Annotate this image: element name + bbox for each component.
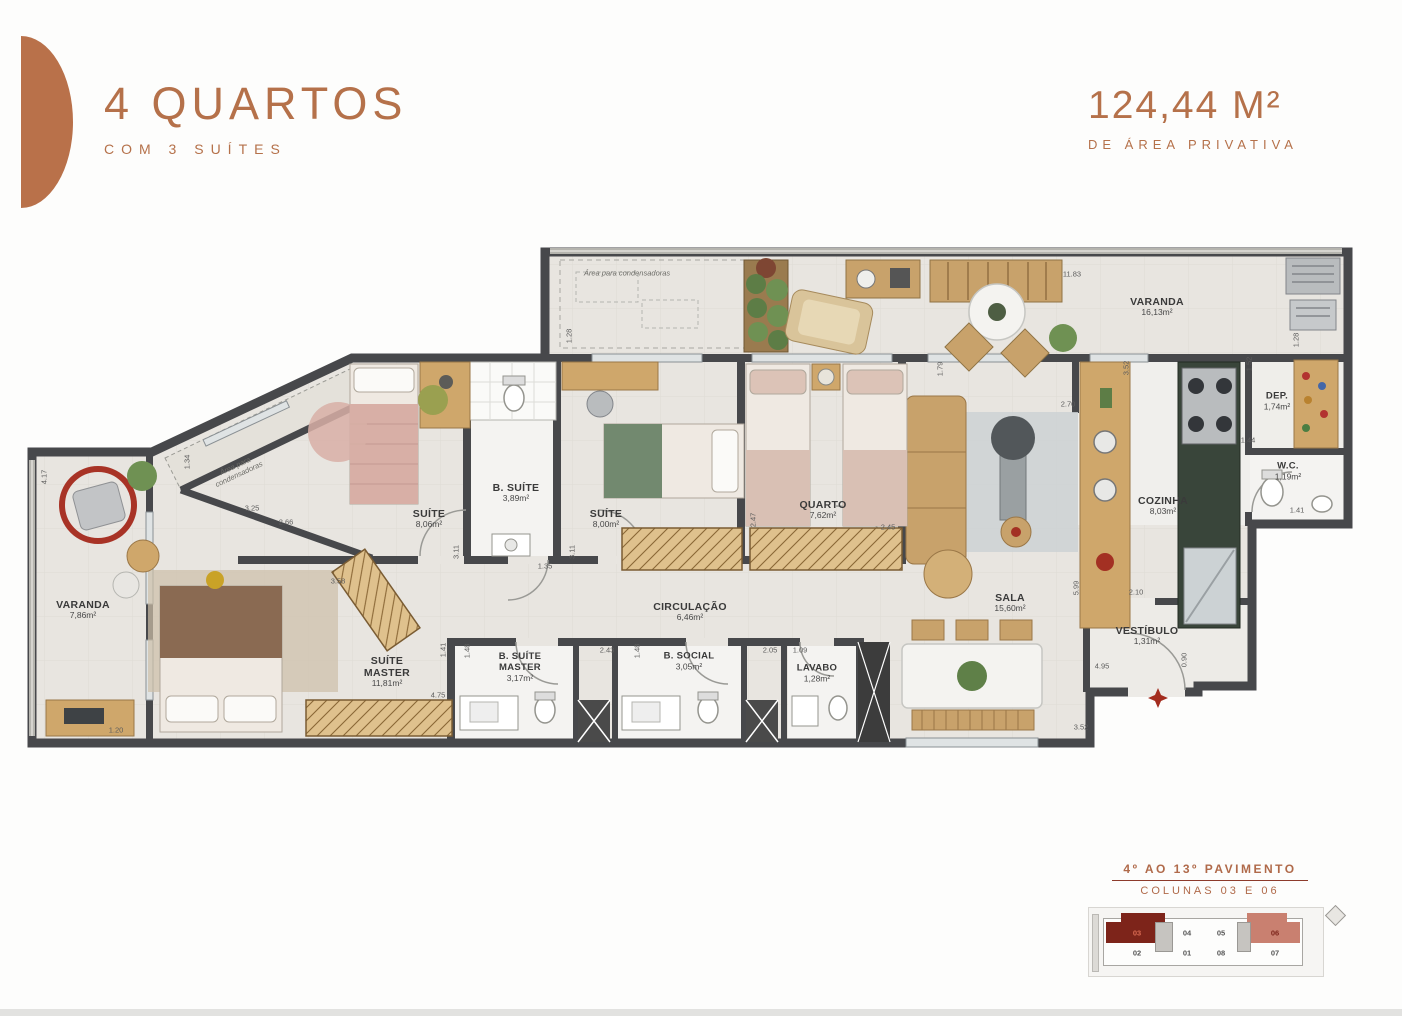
room-label-suite1: SUÍTE 8,06m² xyxy=(413,508,445,530)
keyplan-unit-05: 05 xyxy=(1217,929,1225,938)
keyplan-unit-01: 01 xyxy=(1183,949,1191,958)
room-label-bsocial: B. SOCIAL 3,05m² xyxy=(664,652,715,673)
dimension-label: 3.11 xyxy=(568,545,577,559)
dimension-label: 3.52 xyxy=(1122,361,1131,376)
keyplan-core-left xyxy=(1155,922,1173,952)
dimension-label: 11.83 xyxy=(1063,270,1081,279)
dimension-label: 1.41 xyxy=(439,643,448,658)
floorplan-page: 4 QUARTOS COM 3 SUÍTES 124,44 M² DE ÁREA… xyxy=(0,0,1402,1016)
room-label-wc: W.C. 1,19m² xyxy=(1275,462,1301,483)
dimension-label: 3.11 xyxy=(452,545,461,559)
dimension-label: 1.20 xyxy=(109,726,124,735)
room-label-circulacao: CIRCULAÇÃO 6,46m² xyxy=(653,601,727,623)
dimension-label: 3.58 xyxy=(331,577,346,586)
dimension-label: 2.70 xyxy=(1061,400,1076,409)
room-label-varanda-top: VARANDA 16,13m² xyxy=(1130,296,1184,318)
dimension-label: 1.09 xyxy=(793,646,808,655)
dimension-label: 4.75 xyxy=(431,691,446,700)
legend-columns-line: COLUNAS 03 E 06 xyxy=(1080,885,1340,897)
keyplan-unit-03: 03 xyxy=(1133,929,1141,938)
keyplan-unit-04: 04 xyxy=(1183,929,1191,938)
dimension-label: 1.35 xyxy=(538,562,553,571)
dimension-label: 1.41 xyxy=(1290,506,1305,515)
legend-floors-line: 4º AO 13º PAVIMENTO xyxy=(1080,862,1340,876)
dimension-label: 3.52 xyxy=(1074,723,1089,732)
keyplan-unit-06: 06 xyxy=(1271,929,1279,938)
dimension-label: 1.44 xyxy=(1241,436,1256,445)
dimension-label: 4.95 xyxy=(1095,662,1110,671)
dimension-label: 3.25 xyxy=(245,504,260,513)
room-label-cozinha: COZINHA 8,03m² xyxy=(1138,495,1188,517)
dimension-label: 1.34 xyxy=(183,455,192,470)
dimension-label: 2.05 xyxy=(763,646,778,655)
room-label-suite-master: SUÍTE MASTER 11,81m² xyxy=(352,655,422,689)
room-label-lavabo: LAVABO 1,28m² xyxy=(797,664,838,685)
dimension-label: 1.79 xyxy=(936,362,945,377)
dimension-label: 2.10 xyxy=(1129,588,1144,597)
page-bottom-band xyxy=(0,1009,1402,1016)
room-label-dep: DEP. 1,74m² xyxy=(1264,392,1290,413)
room-label-bsuite: B. SUÍTE 3,89m² xyxy=(493,482,540,504)
keyplan-unit-02: 02 xyxy=(1133,949,1141,958)
dimension-label: 1.52 xyxy=(1245,357,1254,372)
legend-divider xyxy=(1112,880,1308,881)
dimension-label: 4.17 xyxy=(40,470,49,485)
room-label-varanda-left: VARANDA 7,86m² xyxy=(56,599,110,621)
dimension-label: 0.90 xyxy=(1180,653,1189,668)
room-label-suite2: SUÍTE 8,00m² xyxy=(590,508,622,530)
keyplan-unit-07: 07 xyxy=(1271,949,1279,958)
dimension-label: 2.45 xyxy=(881,523,896,532)
room-label-sala: SALA 15,60m² xyxy=(994,592,1025,614)
keyplan-scale-bar xyxy=(1092,914,1099,972)
dimension-label: 2.47 xyxy=(749,513,758,528)
condenser-note-top: Área para condensadoras xyxy=(562,269,692,278)
dimension-label: 1.28 xyxy=(565,329,574,344)
keyplan-unit-08: 08 xyxy=(1217,949,1225,958)
room-label-bsuite-master: B. SUÍTE MASTER 3,17m² xyxy=(478,652,562,684)
room-label-quarto: QUARTO 7,62m² xyxy=(799,499,846,521)
dimension-label: 1.28 xyxy=(1292,333,1301,348)
keyplan-diagram: 03 04 05 06 02 01 08 07 xyxy=(1088,907,1324,977)
dimension-label: 2.43 xyxy=(600,646,615,655)
dimension-label: 2.66 xyxy=(279,518,294,527)
keyplan-core-right xyxy=(1237,922,1251,952)
dimension-label: 1.48 xyxy=(633,644,642,659)
room-label-vestibulo: VESTÍBULO 1,31m² xyxy=(1116,625,1179,647)
dimension-label: 1.48 xyxy=(463,644,472,659)
dimension-label: 5.99 xyxy=(1072,581,1081,596)
legend: 4º AO 13º PAVIMENTO COLUNAS 03 E 06 03 0… xyxy=(1080,862,1340,977)
